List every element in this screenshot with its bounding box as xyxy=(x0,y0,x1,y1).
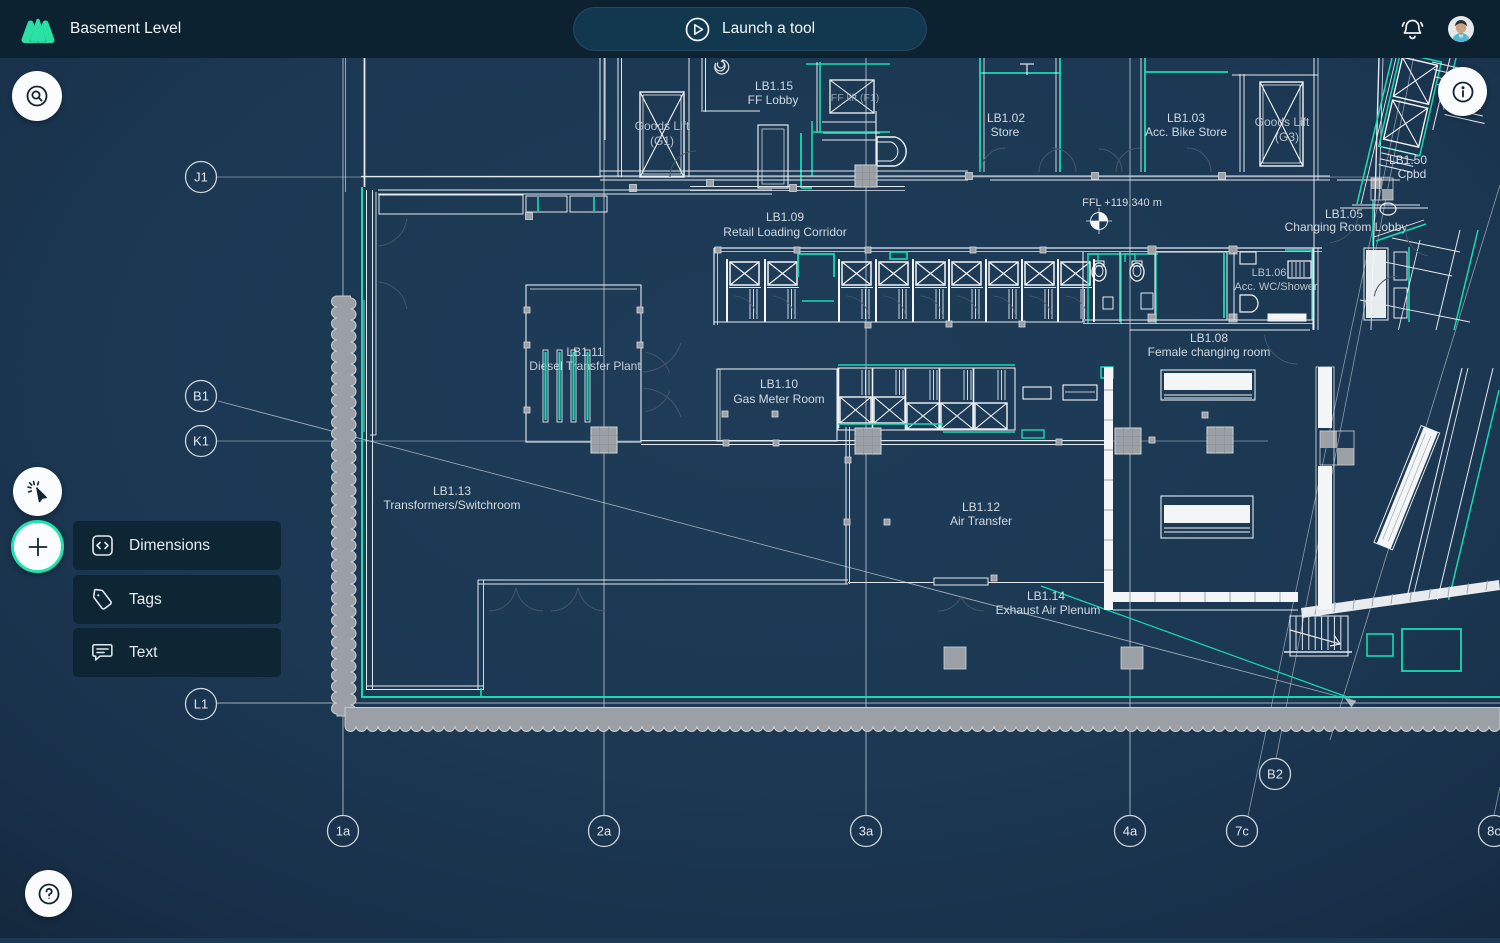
svg-text:(G1): (G1) xyxy=(650,134,674,148)
svg-text:LB1.10: LB1.10 xyxy=(760,377,798,391)
svg-text:LB1.15: LB1.15 xyxy=(755,79,793,93)
svg-text:B2: B2 xyxy=(1267,767,1283,782)
svg-text:B1: B1 xyxy=(193,389,209,404)
svg-text:L1: L1 xyxy=(194,697,208,712)
svg-text:Gas Meter Room: Gas Meter Room xyxy=(733,392,824,406)
svg-text:FF Lobby: FF Lobby xyxy=(748,93,799,107)
svg-text:Transformers/Switchroom: Transformers/Switchroom xyxy=(384,498,521,512)
svg-text:Acc. Bike Store: Acc. Bike Store xyxy=(1145,125,1227,139)
svg-text:LB1.13: LB1.13 xyxy=(433,484,471,498)
svg-text:1a: 1a xyxy=(336,824,351,839)
svg-text:Air Transfer: Air Transfer xyxy=(950,514,1012,528)
svg-text:Goods Lift: Goods Lift xyxy=(635,119,690,133)
svg-text:FFL +119.340 m: FFL +119.340 m xyxy=(1082,197,1162,209)
svg-text:2a: 2a xyxy=(597,824,612,839)
svg-text:LB1.12: LB1.12 xyxy=(962,500,1000,514)
svg-text:Store: Store xyxy=(991,125,1020,139)
svg-text:8c: 8c xyxy=(1487,824,1500,839)
svg-text:LB1.09: LB1.09 xyxy=(766,210,804,224)
svg-text:Acc. WC/Shower: Acc. WC/Shower xyxy=(1234,281,1317,293)
svg-text:3a: 3a xyxy=(859,824,874,839)
svg-text:LB1.06: LB1.06 xyxy=(1252,267,1287,279)
svg-text:LB1.03: LB1.03 xyxy=(1167,111,1205,125)
svg-text:4a: 4a xyxy=(1123,824,1138,839)
svg-text:FF lift (F1): FF lift (F1) xyxy=(831,92,879,104)
svg-text:J1: J1 xyxy=(194,170,208,185)
svg-text:7c: 7c xyxy=(1235,824,1249,839)
svg-text:Exhaust Air Plenum: Exhaust Air Plenum xyxy=(996,603,1101,617)
svg-text:LB1.14: LB1.14 xyxy=(1027,589,1065,603)
svg-text:Cpbd: Cpbd xyxy=(1398,167,1427,181)
svg-text:LB1.02: LB1.02 xyxy=(987,111,1025,125)
svg-text:K1: K1 xyxy=(193,434,209,449)
svg-text:Retail Loading Corridor: Retail Loading Corridor xyxy=(723,225,846,239)
svg-text:Female changing room: Female changing room xyxy=(1148,345,1271,359)
svg-text:LB1.08: LB1.08 xyxy=(1190,331,1228,345)
svg-text:Goods Lift: Goods Lift xyxy=(1255,115,1310,129)
svg-text:(G3): (G3) xyxy=(1275,130,1299,144)
